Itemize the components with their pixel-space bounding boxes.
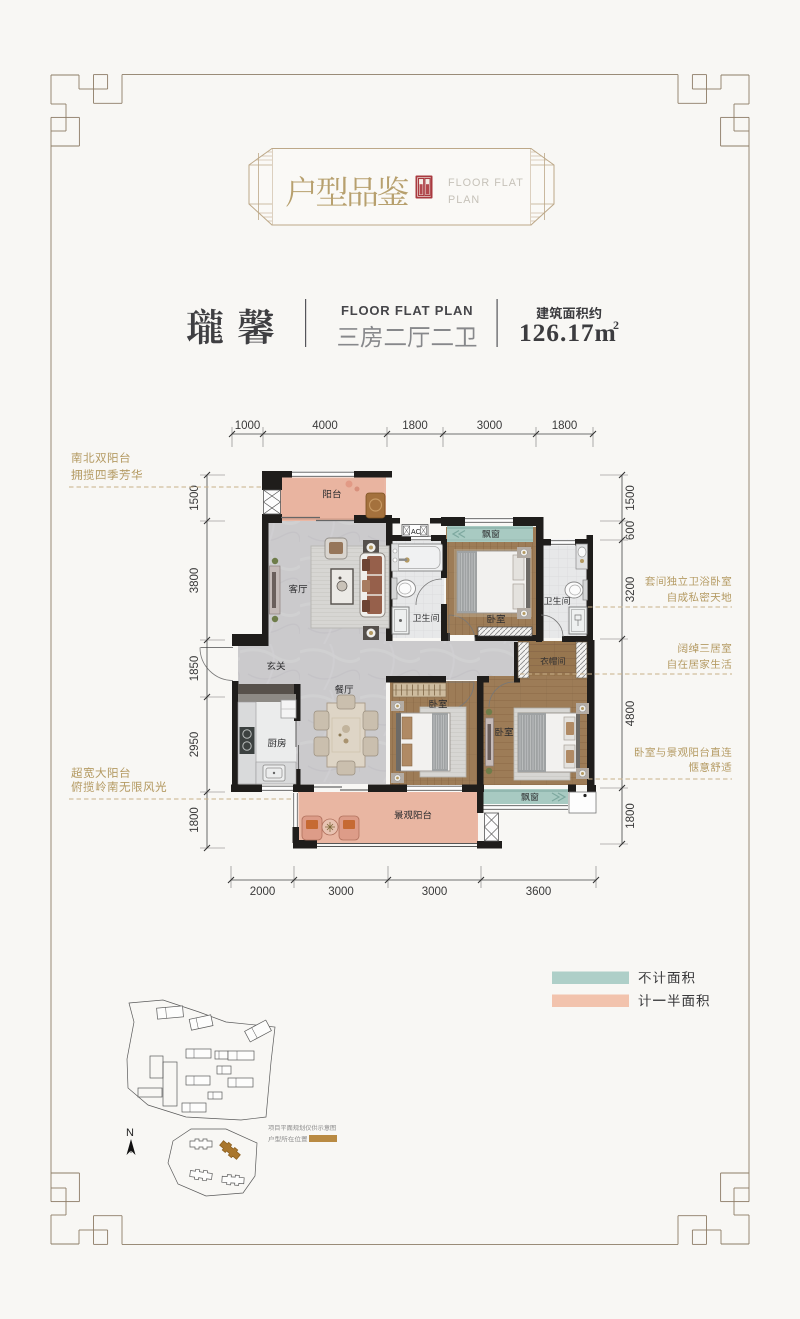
svg-text:3000: 3000 (422, 886, 448, 898)
svg-text:1000: 1000 (235, 420, 261, 432)
svg-text:1850: 1850 (189, 656, 201, 682)
svg-text:1800: 1800 (625, 803, 637, 829)
svg-text:2950: 2950 (189, 732, 201, 758)
svg-text:1800: 1800 (402, 420, 428, 432)
svg-text:3200: 3200 (625, 577, 637, 603)
svg-text:600: 600 (625, 521, 637, 540)
svg-text:1800: 1800 (189, 807, 201, 833)
svg-text:2000: 2000 (250, 886, 276, 898)
svg-text:AC: AC (411, 529, 421, 536)
svg-text:1800: 1800 (552, 420, 578, 432)
svg-text:3000: 3000 (328, 886, 354, 898)
svg-text:4800: 4800 (625, 701, 637, 727)
svg-text:1500: 1500 (189, 485, 201, 511)
svg-text:N: N (126, 1127, 134, 1139)
svg-text:3800: 3800 (189, 568, 201, 594)
svg-text:3000: 3000 (477, 420, 503, 432)
svg-text:2: 2 (613, 318, 619, 332)
svg-text:FLOOR FLAT PLAN: FLOOR FLAT PLAN (341, 303, 473, 318)
svg-text:3600: 3600 (526, 886, 552, 898)
svg-text:126.17m: 126.17m (519, 318, 617, 347)
svg-text:PLAN: PLAN (448, 194, 480, 206)
svg-text:4000: 4000 (312, 420, 338, 432)
svg-text:FLOOR FLAT: FLOOR FLAT (448, 177, 524, 189)
svg-text:1500: 1500 (625, 485, 637, 511)
